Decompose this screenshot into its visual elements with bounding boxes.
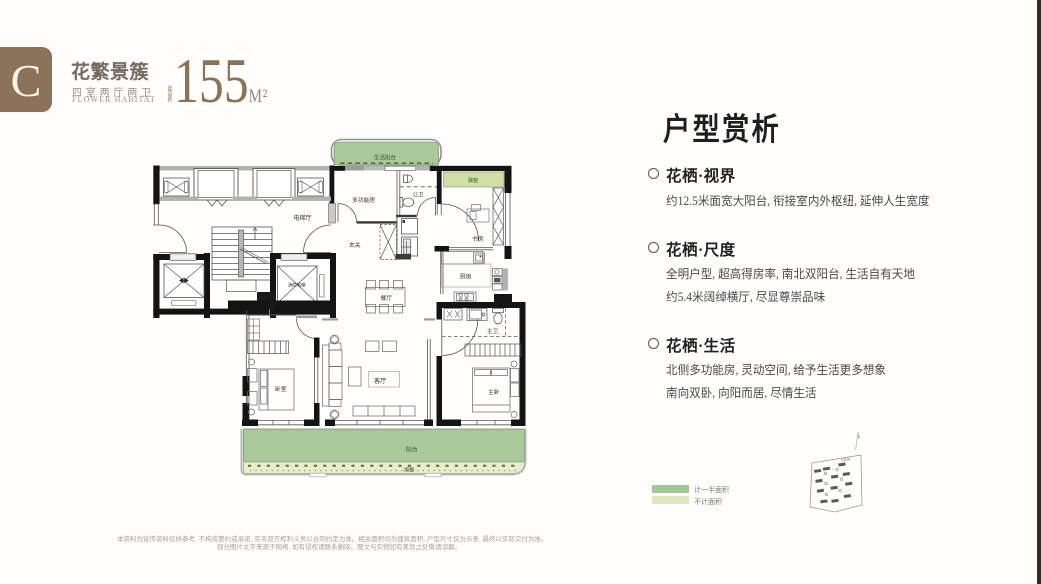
svg-text:主卫: 主卫 [487, 327, 499, 335]
svg-text:消防电梯: 消防电梯 [288, 282, 306, 289]
svg-text:电梯厅: 电梯厅 [294, 214, 312, 222]
svg-text:玄关: 玄关 [349, 241, 361, 249]
svg-text:多功能房: 多功能房 [352, 196, 375, 204]
svg-text:公卫: 公卫 [413, 192, 425, 199]
svg-text:卧室: 卧室 [275, 385, 287, 393]
svg-text:客厅: 客厅 [374, 377, 386, 385]
svg-text:生活阳台: 生活阳台 [374, 154, 397, 162]
svg-text:餐厅: 餐厅 [381, 294, 393, 302]
svg-text:厨房: 厨房 [460, 273, 472, 281]
svg-text:雨棚: 雨棚 [404, 467, 414, 474]
svg-text:主卧: 主卧 [488, 388, 500, 396]
svg-text:阳台: 阳台 [406, 446, 418, 454]
svg-text:飘窗: 飘窗 [468, 177, 478, 184]
svg-text:书房: 书房 [472, 235, 484, 243]
